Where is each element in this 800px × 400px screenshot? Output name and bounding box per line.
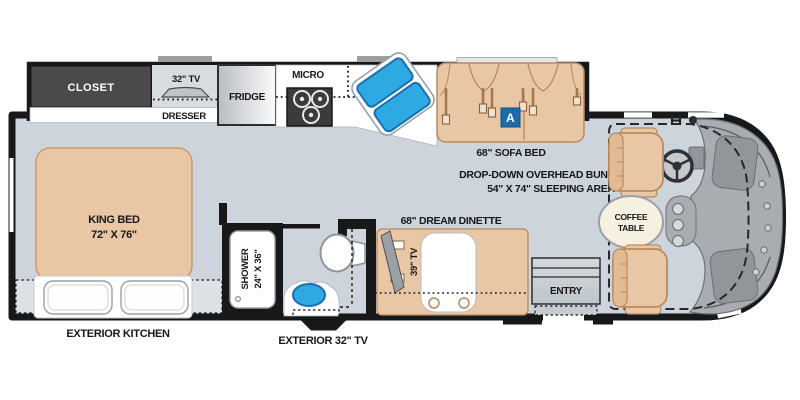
- dinette-label: 68" DREAM DINETTE: [401, 215, 502, 227]
- bottom-wall-tab: [503, 319, 542, 325]
- dream-dinette: 39" TV: [375, 229, 528, 315]
- rv-floorplan: CLOSET 32" TV DRESSER FRIDGE MICRO: [0, 0, 800, 400]
- entry-steps: ENTRY: [532, 258, 600, 315]
- table-leg: [429, 298, 439, 308]
- rear-window: [10, 158, 14, 232]
- exterior-tv-label: EXTERIOR 32" TV: [278, 335, 368, 347]
- tv32-label: 32" TV: [172, 74, 201, 85]
- king-bed-label-line2: 72" X 76": [91, 229, 137, 241]
- wall-notch: [624, 112, 652, 117]
- bunk-label-line2: 54" X 74" SLEEPING AREA: [487, 183, 615, 195]
- sofa-badge: A: [501, 108, 520, 127]
- king-bed-label-line1: KING BED: [88, 214, 140, 226]
- bath-half-wall: [283, 224, 320, 229]
- exterior-kitchen-label: EXTERIOR KITCHEN: [66, 328, 170, 340]
- dresser-label: DRESSER: [162, 111, 206, 122]
- bedroom-partition-wall: [219, 203, 227, 225]
- pillow: [121, 281, 188, 314]
- oval-sink-icon: [293, 284, 325, 306]
- bunk-label-line1: DROP-DOWN OVERHEAD BUNK: [459, 169, 616, 181]
- dresser-unit: DRESSER: [30, 108, 218, 123]
- closet-unit: CLOSET: [30, 65, 152, 108]
- coffee-table-label-line1: COFFEE: [615, 212, 648, 222]
- shower-enclosure: SHOWER 24" X 36": [222, 223, 283, 316]
- tv32-unit: 32" TV: [152, 65, 218, 107]
- slideout-tab: [158, 56, 212, 62]
- table-leg: [459, 298, 469, 308]
- shower-label-line2: 24" X 36": [253, 249, 264, 288]
- bath-dinette-wall: [366, 219, 376, 316]
- passenger-seat: [613, 245, 667, 314]
- tv39-label: 39" TV: [409, 247, 420, 276]
- coffee-table-label-line2: TABLE: [618, 223, 645, 233]
- dash-knob-icon: [689, 116, 697, 124]
- sofa-bed-label: 68" SOFA BED: [476, 147, 546, 159]
- coffee-table: COFFEE TABLE: [599, 196, 663, 248]
- closet-label: CLOSET: [67, 82, 114, 94]
- fridge-unit: FRIDGE: [218, 65, 276, 125]
- king-bed: KING BED 72" X 76": [34, 148, 192, 318]
- sofa-badge-label: A: [506, 111, 515, 125]
- driver-seat: [609, 128, 663, 197]
- fridge-label: FRIDGE: [229, 92, 266, 103]
- sofa-bed: A: [437, 63, 584, 142]
- bottom-wall-tab: [593, 319, 613, 325]
- dash-panel: [711, 135, 759, 192]
- exterior-tv-icon: [301, 321, 346, 331]
- shower-label-line1: SHOWER: [240, 248, 251, 289]
- pillow: [44, 281, 112, 314]
- micro-label: MICRO: [292, 70, 324, 81]
- stove-burners-icon: [287, 88, 332, 126]
- dash-panel: [709, 248, 759, 305]
- entry-label: ENTRY: [550, 286, 583, 297]
- center-console: [666, 196, 696, 247]
- entry-step-dashed: [535, 306, 597, 315]
